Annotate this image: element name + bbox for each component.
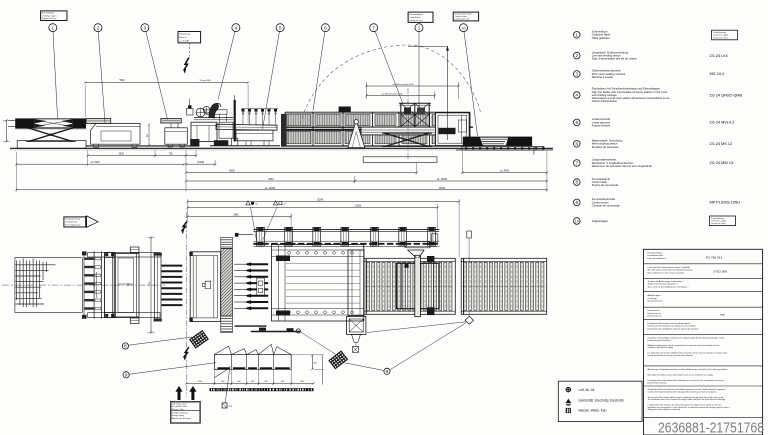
svg-text:partie de notre livraison.: partie de notre livraison. [648,381,668,384]
svg-text:Wasser: 3 bar: Wasser: 3 bar [172,408,184,411]
svg-text:Dimension des fondations selon: Dimension des fondations selon la nature… [648,327,699,330]
svg-text:Sens de fabrication: Sens de fabrication [65,224,80,227]
svg-text:Fertigungsrichtung: Fertigungsrichtung [65,218,80,221]
svg-text:Livraison du client: Livraison du client [713,36,728,39]
svg-text:included in the extent of supp: included in the extent of supply. [648,346,674,349]
svg-text:3: 3 [576,72,579,77]
svg-text:Dimensions en: Dimensions en [648,316,663,318]
svg-text:7: 7 [576,161,579,166]
svg-text:The foundation areas of the ch: The foundation areas of the channels for… [648,398,726,401]
svg-text:750: 750 [169,153,174,156]
svg-text:Customer's supply: Customer's supply [711,220,726,223]
svg-text:Retourneur de panneaux dans le: Retourneur de panneaux dans le sens long… [592,164,652,168]
svg-text:1: 1 [52,25,55,30]
svg-text:Foundation plan: Foundation plan [648,254,664,257]
svg-text:8: 8 [124,344,127,349]
svg-text:Luft: 6 bar, 2 m³/h: Luft: 6 bar, 2 m³/h [172,402,187,405]
svg-text:(1060): (1060) [197,161,204,164]
svg-text:Pupitre de commande: Pupitre de commande [592,183,619,187]
svg-text:ca. 4500: ca. 4500 [500,170,510,173]
svg-text:MP PLS/SS-195U: MP PLS/SS-195U [710,201,741,205]
svg-text:chariot d'alimentation: chariot d'alimentation [592,99,618,103]
svg-text:Ausrichtebock: Ausrichtebock [42,12,55,15]
svg-text:Dimension of foundation accord: Dimension of foundation according to soi… [648,325,697,328]
svg-text:Sous réserve de modifications: Sous réserve de modifications techniques… [648,285,689,288]
svg-text:6: 6 [576,141,579,146]
svg-text:2: 2 [576,53,579,58]
svg-text:Dimension in: Dimension in [648,310,661,312]
svg-text:Base plates foundation screws: Base plates foundation screws and channe… [648,374,714,377]
svg-text:4: 4 [576,93,579,98]
svg-text:câbage devra être adapté en co: câbage devra être adapté en conformité. [648,408,682,411]
svg-text:ZG 24 MW 13: ZG 24 MW 13 [710,161,734,165]
svg-text:3-752 009: 3-752 009 [713,270,727,274]
svg-text:4: 4 [235,25,238,30]
svg-text:Wasser, Water, Eau: Wasser, Water, Eau [579,409,607,413]
svg-text:werden, die Fundamentrahmen de: werden, die Fundamentrahmen der Leitungs… [648,391,718,394]
svg-text:7: 7 [372,25,375,30]
svg-text:Kommandopult: Kommandopult [409,13,423,16]
svg-text:Air- and water connection see: Air- and water connection see detailed d… [648,269,693,272]
svg-text:Support de mise: Support de mise [42,17,57,20]
svg-text:3: 3 [144,25,147,30]
svg-text:Plan de fondament: Plan de fondament [648,257,666,260]
svg-text:9: 9 [576,200,579,205]
svg-text:10: 10 [575,220,579,224]
svg-text:9: 9 [125,372,128,377]
svg-text:Dimensions in: Dimensions in [648,313,662,315]
svg-text:nur Mattenwender 5000: nur Mattenwender 5000 [381,92,403,95]
svg-text:Recouvrements: Recouvrements [648,300,663,303]
svg-text:ca. 9100: ca. 9100 [90,161,100,164]
svg-text:Fundamentplan: Fundamentplan [648,251,664,254]
svg-text:Abdeckungen: Abdeckungen [648,294,662,297]
svg-text:Kommandozentrale: Kommandozentrale [454,13,472,16]
svg-text:ca. 19000: ca. 19000 [265,187,276,190]
svg-text:ca. 25 kVA: ca. 25 kVA [179,39,189,42]
svg-text:Kundenlieferung: Kundenlieferung [711,218,724,220]
svg-text:6: 6 [324,25,327,30]
svg-text:8: 8 [576,180,579,185]
svg-text:Machine à souder: Machine à souder [592,75,613,79]
svg-text:Coverings: Coverings [648,298,658,300]
svg-text:Control center: Control center [454,15,467,18]
svg-text:5: 5 [576,120,579,125]
svg-text:Absenkungen, Fundamentschraube: Absenkungen, Fundamentschrauben und Kana… [648,368,729,371]
svg-text:8600: 8600 [229,170,235,173]
svg-text:Teilung 9660: Teilung 9660 [199,80,211,82]
svg-text:19240: 19240 [439,187,446,190]
svg-text:5: 5 [279,25,282,30]
svg-text:Customer's supply: Customer's supply [713,34,728,37]
svg-text:Fundament-Schrauben nach Funda: Fundament-Schrauben nach Fundamentplan ! [648,322,692,325]
svg-text:mm: mm [720,313,726,317]
svg-text:Centrale de commande: Centrale de commande [592,203,620,207]
svg-text:8: 8 [386,369,389,374]
svg-text:Raccordements à l'air et l'eau: Raccordements à l'air et l'eau voir plan [648,271,686,274]
svg-text:1: 1 [576,32,579,37]
svg-text:ZG 24 MS 12: ZG 24 MS 12 [710,142,733,146]
svg-text:2: 2 [97,25,100,30]
svg-text:Empileur de panneaux: Empileur de panneaux [592,145,620,149]
svg-text:Avance linéaire: Avance linéaire [592,123,611,127]
svg-text:Alimentation d'énergie: Alimentation d'énergie [172,417,191,420]
svg-text:Lieferumfang nicht enthalten.: Lieferumfang nicht enthalten. [648,339,672,342]
svg-text:le pays destinataire ne font p: le pays destinataire ne font pas partie … [648,354,694,357]
svg-text:5540: 5540 [119,80,125,82]
svg-text:Energy supply: Energy supply [172,414,184,417]
svg-text:3150: 3150 [149,281,151,287]
svg-text:ca. 14500: ca. 14500 [437,178,448,181]
svg-text:9454: 9454 [268,178,274,181]
svg-text:10: 10 [461,26,465,30]
svg-text:2860: 2860 [233,214,239,216]
svg-text:1: 1 [418,25,421,30]
svg-text:Leveling support: Leveling support [42,14,57,17]
svg-text:Control desk: Control desk [409,16,420,19]
svg-text:Luft- und Wasseranschlüsse sie: Luft- und Wasseranschlüsse siehe Punktbi… [648,266,691,269]
svg-text:Subject to technical alteratio: Subject to technical alterations ! [648,283,679,286]
svg-text:Centrale de com.: Centrale de com. [454,18,470,21]
svg-text:5500: 5500 [119,153,125,156]
svg-text:Livraison du client: Livraison du client [711,222,726,225]
svg-text:Luft, Air, Air: Luft, Air, Air [579,388,596,392]
svg-text:Mains in: Mains in [179,37,186,39]
svg-text:ZG 24 MVL4.2: ZG 24 MVL4.2 [710,121,735,125]
svg-text:2636881-21751768: 2636881-21751768 [658,420,764,435]
svg-text:El.: 3x400V 50Hz: El.: 3x400V 50Hz [172,406,187,408]
svg-text:15240: 15240 [317,199,324,201]
svg-text:ZG 24 QFB/2-QMB: ZG 24 QFB/2-QMB [710,93,743,97]
svg-text:Einspeisung: Einspeisung [179,34,190,36]
svg-text:Disp. d'alimentation des fils: Disp. d'alimentation des fils de chaine [592,57,637,61]
svg-text:Energie-Zuführung: Energie-Zuführung [172,411,188,414]
svg-text:Elektrizität, Electricity, Ele: Elektrizität, Electricity, Electricité [579,398,625,402]
svg-text:Technische Änderungen vorbehal: Technische Änderungen vorbehalten ! [648,280,684,283]
svg-text:Pupitre de com.: Pupitre de com. [409,19,423,22]
svg-text:Production flow: Production flow [65,221,78,224]
svg-text:MG 24.4: MG 24.4 [710,72,725,76]
svg-text:Table guillotine: Table guillotine [592,36,610,40]
svg-text:13050: 13050 [355,205,362,207]
svg-text:R1-760 013: R1-760 013 [706,256,722,260]
svg-text:ZG 24 LV4: ZG 24 LV4 [710,54,728,58]
svg-text:Kundenlieferung: Kundenlieferung [713,32,726,34]
svg-text:Folgeanlagen: Folgeanlagen [592,219,609,223]
